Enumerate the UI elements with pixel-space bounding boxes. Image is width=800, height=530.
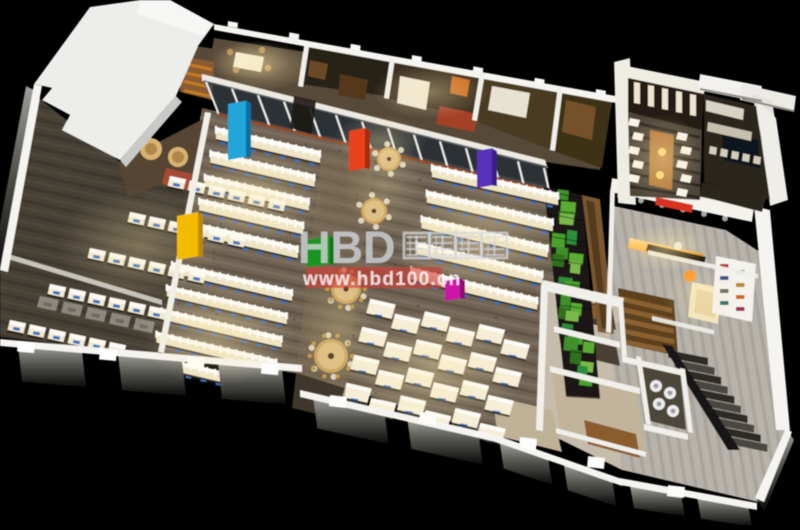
svg-text:HBD: HBD	[298, 222, 396, 273]
svg-text:www.hbd100.cn: www.hbd100.cn	[302, 269, 461, 290]
